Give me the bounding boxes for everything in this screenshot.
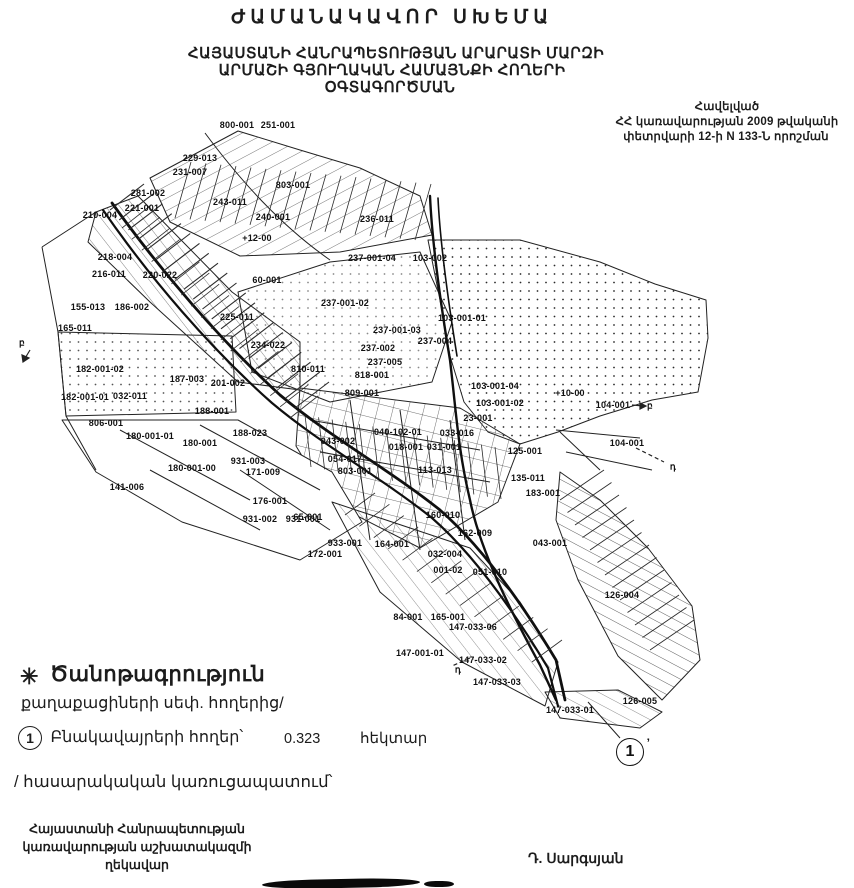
parcel-label: 043-002 (321, 436, 355, 446)
parcel-label: 165-011 (58, 323, 92, 333)
parcel-label: 810-011 (291, 364, 325, 374)
parcel-label: 220-022 (143, 270, 177, 280)
parcel-label: 182-001-02 (76, 364, 124, 374)
parcel-label: +12-00 (242, 233, 271, 243)
parcel-label: 201-002 (211, 378, 245, 388)
parcel-label: 180-001-00 (168, 463, 216, 473)
parcel-label: 818-001 (355, 370, 389, 380)
parcel-label: 125-001 (508, 446, 542, 456)
subtitle-line-1: ՀԱՅԱՍՏԱՆԻ ՀԱՆՐԱՊԵՏՈՒԹՅԱՆ ԱՐԱՐԱՏԻ ՄԱՐԶԻ (188, 44, 604, 62)
parcel-label: 147-001-01 (396, 648, 444, 658)
legend-item-number-icon: 1 (18, 726, 42, 750)
legend-item: 1 Բնակավայրերի հողեր՝ (18, 726, 243, 750)
parcel-label: 931-001 (286, 514, 320, 524)
legend-subheading: քաղաքացիների սեփ. հողերից/ (21, 693, 284, 713)
parcel-label: 186-002 (115, 302, 149, 312)
parcel-label: 65-001 (293, 512, 322, 522)
parcel-label: 147-033-06 (449, 622, 497, 632)
parcel-label: 103-002 (413, 253, 447, 263)
parcel-label: 183-001 (526, 488, 560, 498)
parcel-label: 031-001 (427, 442, 461, 452)
parcel-label: բ (19, 338, 25, 349)
parcel-label: 032-011 (113, 391, 147, 401)
scan-smudge-small (424, 881, 454, 887)
parcel-label: 141-006 (110, 482, 144, 492)
parcel-label: 040-102-01 (374, 427, 422, 437)
parcel-label: 236-011 (360, 214, 394, 224)
parcel-label: 243-011 (213, 197, 247, 207)
parcel-label: 803-001 (276, 180, 310, 190)
parcel-label: 126-005 (623, 696, 657, 706)
parcel-label: 147-033-03 (473, 677, 521, 687)
parcel-label: 931-002 (243, 514, 277, 524)
parcel-label: դ (455, 665, 461, 676)
parcel-label: 251-001 (261, 120, 295, 130)
parcel-label: 240-001 (256, 212, 290, 222)
signature: Դ. Սարգսյան (528, 850, 623, 867)
legend-note: / հասարակական կառուցապատում՝ (14, 772, 332, 792)
parcel-label: 033-016 (440, 428, 474, 438)
parcel-label: 216-011 (92, 269, 126, 279)
parcel-label: 234-022 (251, 340, 285, 350)
parcel-label: 176-001 (253, 496, 287, 506)
legend-item-label: Բնակավայրերի հողեր՝ (50, 729, 243, 746)
parcel-label: դ (670, 462, 676, 473)
parcel-label: 103-001-02 (476, 398, 524, 408)
parcel-label: 229-013 (183, 153, 217, 163)
parcel-label: 809-001 (345, 388, 379, 398)
parcel-label: 188-001 (195, 406, 229, 416)
parcel-label: 001-02 (433, 565, 462, 575)
parcel-label: 187-003 (170, 374, 204, 384)
scanned-cadastral-scheme-page: ԺԱՄԱՆԱԿԱՎՈՐ ՍԽԵՄԱ ՀԱՅԱՍՏԱՆԻ ՀԱՆՐԱՊԵՏՈՒԹՅ… (0, 0, 854, 888)
parcel-label: 103-001-04 (471, 381, 519, 391)
subtitle-line-3: ՕԳՏԱԳՈՐԾՄԱՆ (325, 78, 456, 96)
parcel-label: 60-001 (252, 275, 281, 285)
parcel-label: 180-001-01 (126, 431, 174, 441)
parcel-label: 032-004 (428, 549, 462, 559)
parcel-label: 218-004 (98, 252, 132, 262)
parcel-label: 84-001 (393, 612, 422, 622)
legend-item-value: 0.323 (284, 731, 320, 747)
map-marker-suffix: ’ (647, 736, 650, 750)
parcel-label: 043-001 (533, 538, 567, 548)
parcel-label: 221-001 (125, 203, 159, 213)
map-marker-number: 1 (626, 743, 635, 761)
parcel-label: 147-033-01 (546, 705, 594, 715)
parcel-label: 237-001-02 (321, 298, 369, 308)
annex-line-3: փետրվարի 12-ի N 133-Ն որոշման (623, 129, 829, 143)
footer-left-block: Հայաստանի Հանրապետության կառավարության ա… (12, 820, 262, 874)
parcel-label: 237-005 (368, 357, 402, 367)
parcel-label: 237-004 (418, 336, 452, 346)
parcel-label: 237-001-04 (348, 253, 396, 263)
legend-star-icon: ✳ (20, 664, 38, 690)
parcel-label: 051-010 (473, 567, 507, 577)
parcel-label: 180-001 (183, 438, 217, 448)
parcel-label: 104-001 (596, 400, 630, 410)
parcel-label: բ (647, 401, 653, 412)
page-title: ԺԱՄԱՆԱԿԱՎՈՐ ՍԽԵՄԱ (231, 6, 553, 29)
map-marker-1: 1 ’ (616, 738, 644, 766)
parcel-label: 225-011 (220, 312, 254, 322)
parcel-label: +10-00 (555, 388, 584, 398)
parcel-label: 931-003 (231, 456, 265, 466)
parcel-label: 171-009 (246, 467, 280, 477)
parcel-label: 803-001 (338, 466, 372, 476)
parcel-label: 182-001-01 (61, 392, 109, 402)
parcel-label: 054-017 (328, 454, 362, 464)
footer-left-line-1: Հայաստանի Հանրապետության (12, 820, 262, 838)
parcel-label: 800-001 (220, 120, 254, 130)
parcel-label: 210-004 (83, 210, 117, 220)
annex-line-2: ՀՀ կառավարության 2009 թվականի (616, 114, 839, 128)
parcel-label: 113-013 (418, 465, 452, 475)
parcel-label: 164-001 (375, 539, 409, 549)
subtitle-line-2: ԱՐՄԱՇԻ ԳՅՈՒՂԱԿԱՆ ՀԱՄԱՅՆՔԻ ՀՈՂԵՐԻ (219, 61, 566, 79)
parcel-label: 162-009 (458, 528, 492, 538)
parcel-label: 018-001 (389, 442, 423, 452)
legend-item-unit: հեկտար (360, 729, 427, 747)
annex-line-1: Հավելված (695, 99, 759, 113)
parcel-label: 237-002 (361, 343, 395, 353)
parcel-label: 165-001 (431, 612, 465, 622)
parcel-label: 155-013 (71, 302, 105, 312)
parcel-label: 231-007 (173, 167, 207, 177)
parcel-label: 237-001-03 (373, 325, 421, 335)
parcel-label: 806-001 (89, 418, 123, 428)
parcel-label: 126-004 (605, 590, 639, 600)
parcel-label: 172-001 (308, 549, 342, 559)
footer-left-line-2: կառավարության աշխատակազմի (12, 838, 262, 856)
parcel-label: 188-023 (233, 428, 267, 438)
parcel-label: 160-010 (426, 510, 460, 520)
footer-left-line-3: ղեկավար (12, 856, 262, 874)
parcel-label: 281-002 (131, 188, 165, 198)
legend-heading: Ծանոթագրություն (50, 662, 265, 687)
parcel-label: 23-001 (463, 413, 492, 423)
parcel-label: 147-033-02 (459, 655, 507, 665)
scan-smudge (262, 878, 420, 888)
parcel-label: 103-001-01 (438, 313, 486, 323)
parcel-label: 135-011 (511, 473, 545, 483)
parcel-label: 104-001 (610, 438, 644, 448)
parcel-label: 933-001 (328, 538, 362, 548)
